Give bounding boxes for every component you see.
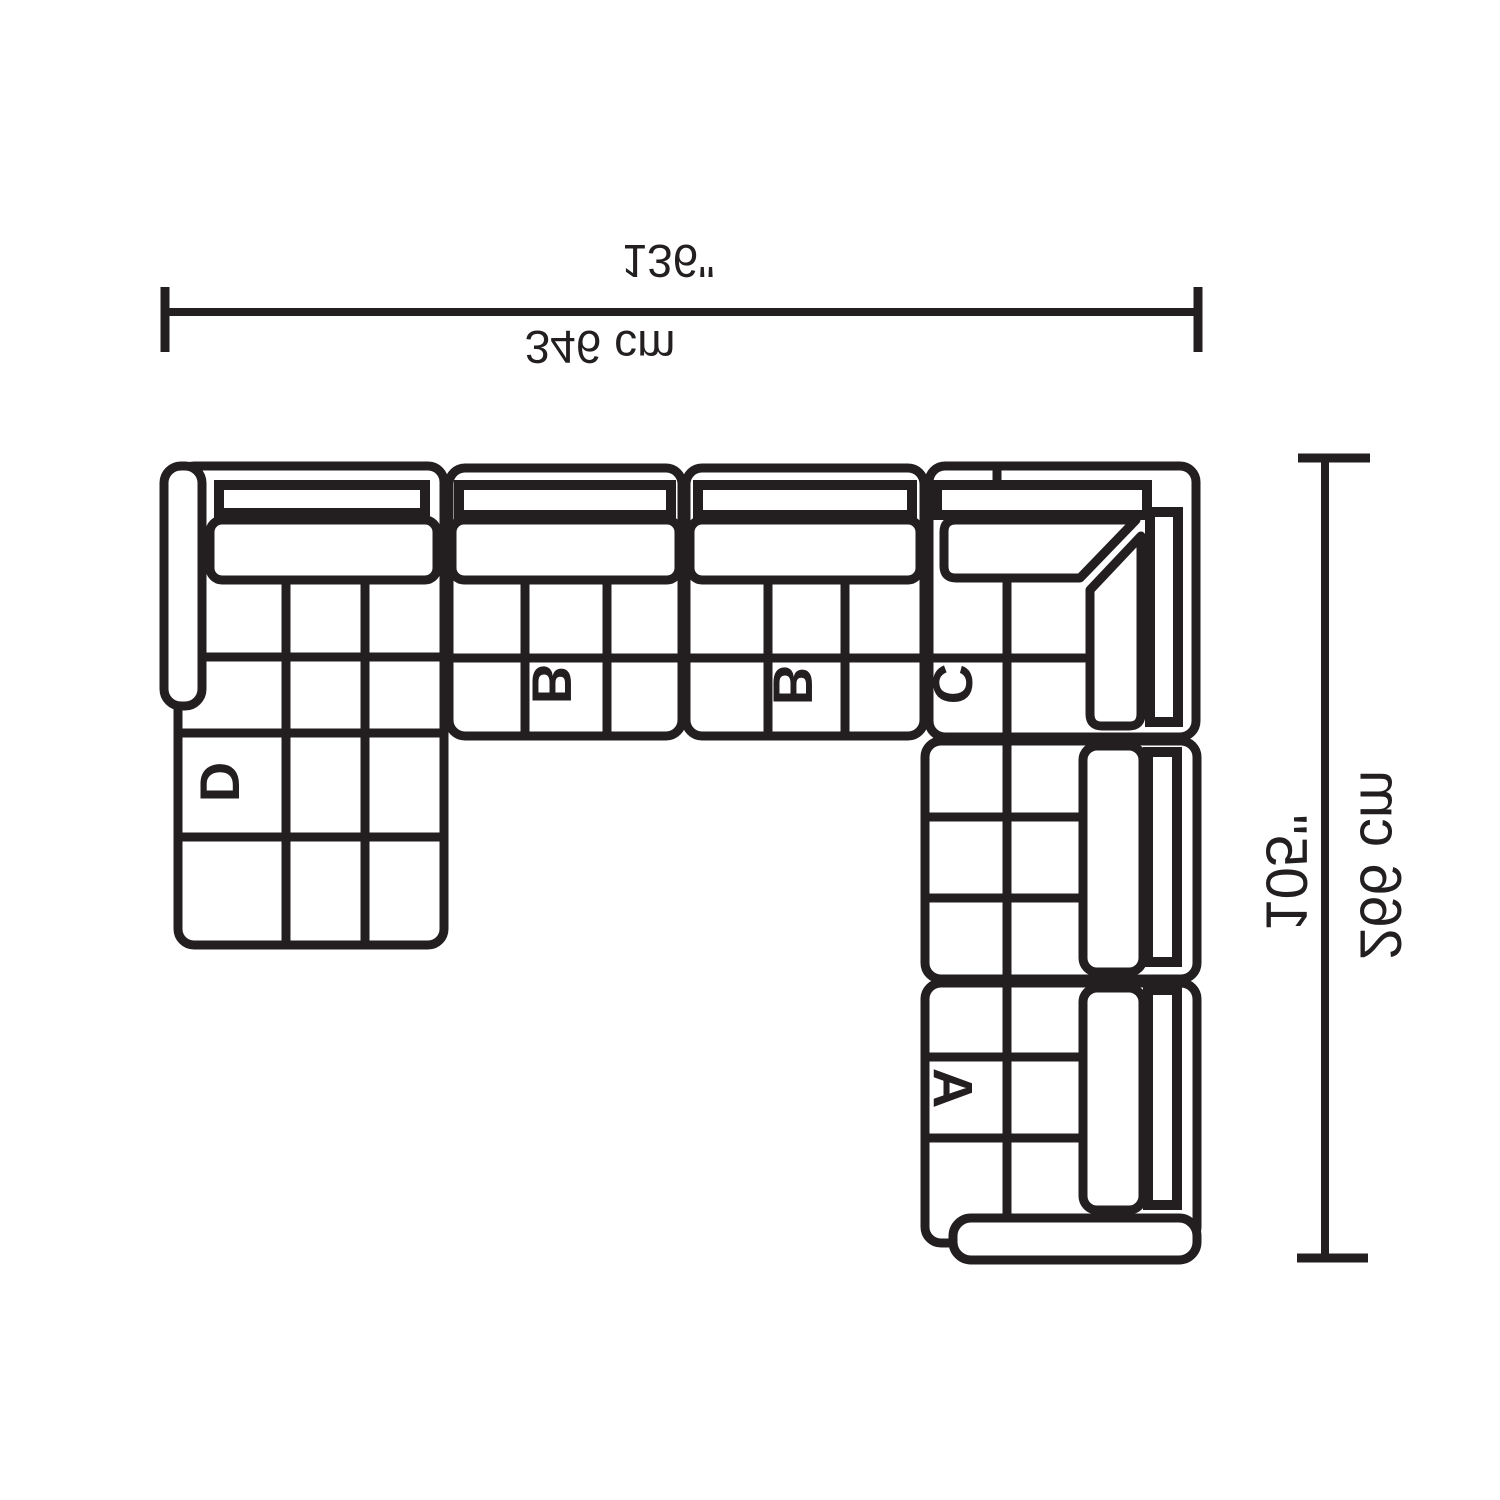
- backrest-frame: [459, 485, 671, 515]
- backrest-frame-side: [1148, 990, 1177, 1205]
- section-b2: B: [686, 468, 924, 736]
- back-cushion: [452, 520, 679, 580]
- left-armrest: [164, 466, 202, 706]
- section-c-corner: C: [922, 466, 1197, 737]
- backrest-frame-side: [1148, 752, 1177, 962]
- back-cushion: [1083, 988, 1143, 1210]
- label-c: C: [922, 664, 985, 704]
- label-a: A: [922, 1068, 985, 1108]
- label-b1: B: [521, 664, 584, 704]
- right-dimension: 105" 266 cm: [1254, 458, 1413, 1258]
- section-a: A: [922, 983, 1198, 1260]
- width-cm-label: 346 cm: [525, 321, 676, 373]
- back-cushion: [210, 520, 437, 580]
- backrest-frame-side: [1150, 512, 1178, 722]
- section-right-middle: [925, 741, 1197, 979]
- sofa-floor-plan-diagram: 136" 346 cm 105" 266 cm D: [0, 0, 1500, 1500]
- height-cm-label: 266 cm: [1348, 770, 1413, 960]
- backrest-frame: [219, 485, 425, 513]
- section-d: D: [178, 466, 444, 945]
- sofa-floor-plan-page: 136" 346 cm 105" 266 cm D: [0, 0, 1500, 1500]
- sofa-sectional: D B B: [164, 466, 1197, 1260]
- backrest-frame: [937, 485, 1147, 515]
- top-dimension: 136" 346 cm: [165, 235, 1198, 373]
- label-d: D: [189, 762, 252, 802]
- backrest-frame: [698, 485, 912, 515]
- bottom-armrest: [953, 1218, 1197, 1260]
- width-inches-label: 136": [621, 235, 714, 287]
- section-b1: B: [449, 468, 682, 736]
- back-cushion: [1083, 746, 1143, 972]
- back-cushion: [690, 520, 920, 580]
- height-inches-label: 105": [1254, 814, 1319, 931]
- label-b2: B: [762, 665, 825, 705]
